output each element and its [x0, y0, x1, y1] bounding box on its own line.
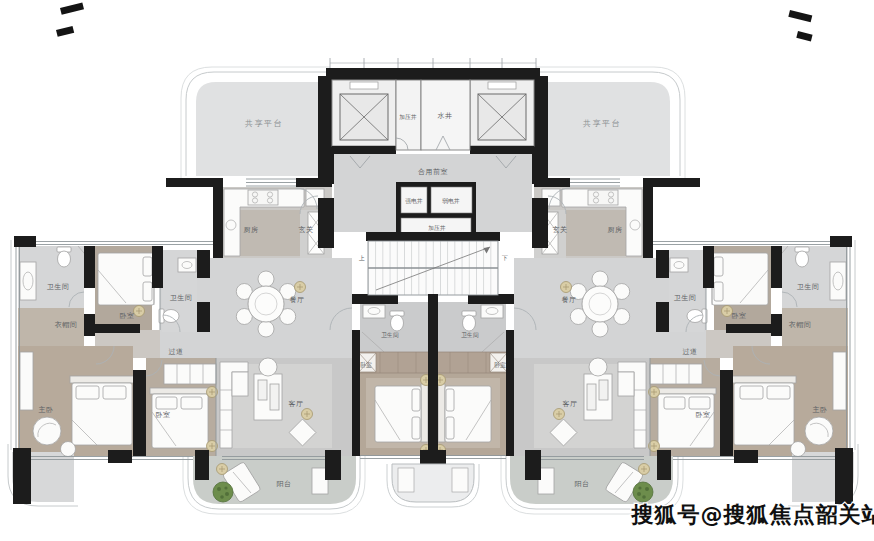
label-balcony-right: 阳台: [575, 480, 590, 488]
label-pressurization-shaft-top: 加压井: [399, 113, 417, 120]
label-dining-right: 餐厅: [562, 296, 577, 304]
label-bedroom-side-left: 卧室: [120, 312, 135, 320]
label-master-bedroom-left: 主卧: [39, 405, 54, 414]
label-entry-right: 玄关: [553, 225, 568, 234]
label-master-bedroom-right: 主卧: [813, 405, 828, 414]
label-balcony-left: 阳台: [277, 480, 292, 488]
label-pressurization-shaft-mid: 加压井: [428, 224, 446, 231]
label-bedroom-2-right: 卧室: [696, 411, 711, 419]
label-stair-down: 下: [502, 255, 508, 261]
label-water-shaft: 水井: [438, 112, 453, 120]
label-kitchen-left: 厨房: [244, 226, 259, 234]
label-bathroom-common-left: 卫生间: [170, 294, 193, 302]
label-corridor-right: 过道: [683, 348, 698, 356]
label-bathroom-master-left: 卫生间: [47, 283, 70, 291]
label-shared-platform-left: 共享平台: [245, 119, 283, 128]
label-kitchen-right: 厨房: [608, 226, 623, 234]
label-bedroom-side-right: 卧室: [732, 312, 747, 320]
label-bathroom-master-right: 卫生间: [797, 283, 820, 291]
label-corridor-left: 过道: [169, 348, 184, 356]
label-weak-electric-shaft: 弱电井: [442, 197, 460, 205]
label-bathroom-common-right: 卫生间: [674, 294, 697, 302]
label-entry-left: 玄关: [299, 225, 314, 234]
floor-plan-image: 共享平台 共享平台 加压井 水井 合用前室 强电井 弱电井 加压井 上 下 厨房…: [0, 0, 874, 541]
label-cloakroom-right: 衣帽间: [789, 321, 812, 329]
label-bedroom-2-left: 卧室: [156, 411, 171, 419]
label-shared-front-room: 合用前室: [418, 168, 448, 176]
floor-plan-svg: 共享平台 共享平台 加压井 水井 合用前室 强电井 弱电井 加压井 上 下 厨房…: [0, 0, 874, 541]
label-bedroom-center-left: 卧室: [360, 361, 372, 368]
label-bedroom-center-right: 卧室: [494, 361, 506, 368]
label-stair-up: 上: [359, 255, 365, 261]
label-shared-platform-right: 共享平台: [583, 119, 621, 128]
label-living-left: 客厅: [289, 400, 304, 408]
elevator-left: [332, 80, 396, 154]
label-dining-left: 餐厅: [290, 296, 305, 304]
staircase: [366, 232, 500, 295]
label-strong-electric-shaft: 强电井: [405, 198, 423, 204]
elevator-right: [470, 80, 534, 154]
watermark: 搜狐号@搜狐焦点韶关站: [631, 502, 874, 527]
label-bathroom-center-right: 卫生间: [461, 331, 479, 339]
label-bathroom-center-left: 卫生间: [381, 331, 399, 339]
label-living-right: 客厅: [563, 400, 578, 408]
label-cloakroom-left: 衣帽间: [55, 321, 78, 329]
